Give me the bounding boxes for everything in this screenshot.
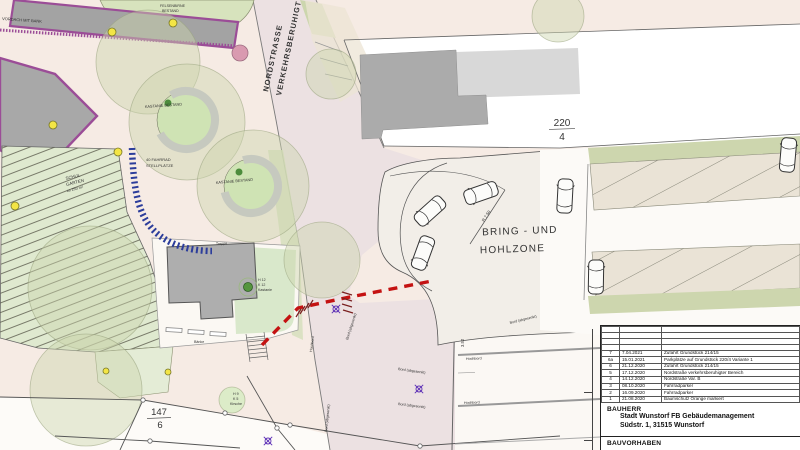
title-block: 77.04.2021Zufahrt Grundstück 214/15 6a15… [600,325,800,450]
bike-parking-label2: STELLPLÄTZE [146,163,174,168]
bauvorhaben-section: BAUVORHABEN [601,436,800,450]
treppe-label: Treppe [216,241,227,246]
revision-row: 308.10.2020Fahrradparker [602,383,800,390]
revision-row: 216.09.2020Fahrradparker [602,390,800,397]
revision-row: 77.04.2021Zufahrt Grundstück 214/15 [602,350,800,357]
bauherr-address: Südstr. 1, 31515 Wunstorf [620,422,794,431]
site-plan-sheet: 220 4 [0,0,800,450]
svg-text:Kastanie: Kastanie [258,288,272,292]
revision-row: 414.12.2020Nordstraße Var. B [602,376,800,383]
bauherr-name: Stadt Wunstorf FB Gebäudemanagement [620,413,794,422]
svg-text:H 12: H 12 [258,278,266,282]
felsenbirne-label: FELSENBIRNE [160,4,186,8]
parcel-220-denominator: 4 [559,132,565,143]
parcel-147-denominator: 6 [157,420,162,431]
revision-row: 121.08.2020Baumschutz Orange markiert [602,396,800,403]
bauvorhaben-heading: BAUVORHABEN [607,440,794,447]
felsenbirne-label2: BESTAND [162,9,179,13]
revision-row: 6a15.01.2021Parkplätze auf Grundstück 22… [602,357,800,364]
svg-text:H 9: H 9 [233,392,239,396]
bike-parking-label: 40 FAHRRAD [146,157,171,162]
pink-tree-marker [232,45,248,61]
courtyard-tree [244,283,253,292]
baenke-label: Bänke [194,340,204,344]
svg-text:K 12: K 12 [258,283,265,287]
parcel-220-numerator: 220 [554,118,571,129]
svg-text:Kirsche: Kirsche [230,402,242,406]
revision-row: 621.12.2020Zufahrt Grundstück 214/15 [602,363,800,370]
bauherr-section: BAUHERR Stadt Wunstorf FB Gebäudemanagem… [601,403,800,433]
sheet-frame-line [592,329,593,450]
revision-table: 77.04.2021Zufahrt Grundstück 214/15 6a15… [601,326,800,403]
bauherr-heading: BAUHERR [607,406,794,413]
hochbord-label-1: Hochbord [466,356,482,361]
svg-text:K 5: K 5 [233,397,238,401]
hochbord-label-2: Hochbord [464,400,480,405]
parking-rows-east [540,136,800,335]
tree-dot [236,169,243,176]
car [555,179,574,214]
sheet-frame-stub [584,440,593,441]
car [587,260,605,294]
revision-row: 517.12.2020Nordstraße verkehrsberuhigter… [602,370,800,377]
svg-text:HOHLZONE: HOHLZONE [480,243,546,256]
parcel-147-numerator: 147 [151,407,167,418]
dimension-label: 3.52 [460,338,465,347]
sheet-frame-stub [584,392,593,393]
